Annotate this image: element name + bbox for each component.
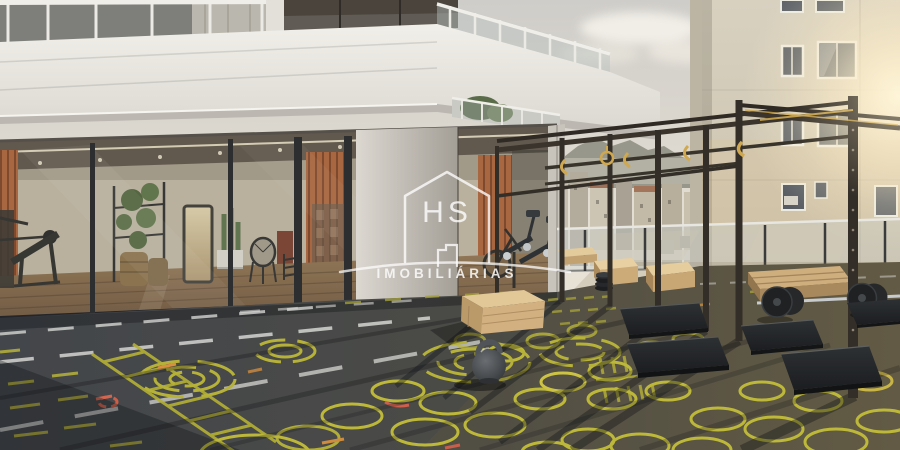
- architectural-rendering: HS IMOBILIÁRIAS: [0, 0, 900, 450]
- scene-canvas: [0, 0, 900, 450]
- facade-column: [356, 127, 458, 305]
